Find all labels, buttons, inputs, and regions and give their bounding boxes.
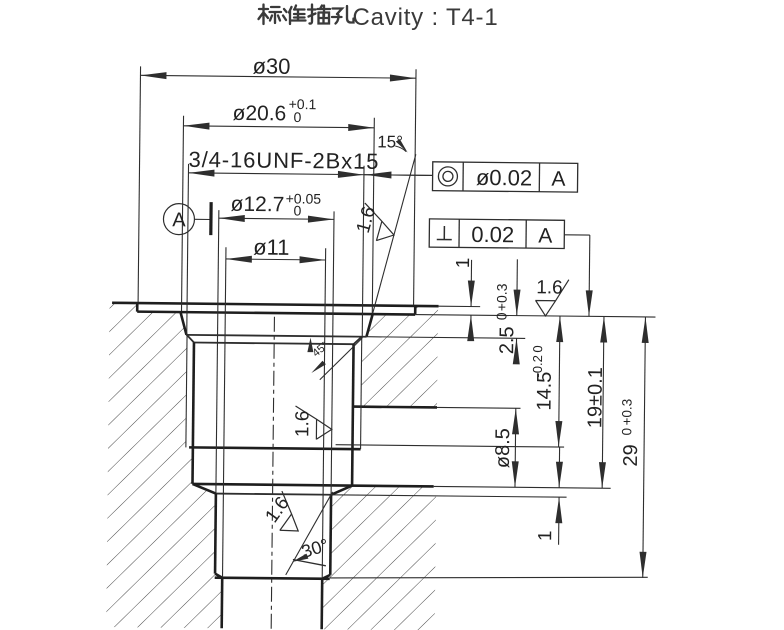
svg-text:ø0.02: ø0.02 (476, 165, 533, 191)
svg-text:ø8.5: ø8.5 (492, 428, 514, 468)
svg-text:1: 1 (535, 530, 556, 541)
svg-text:0: 0 (293, 109, 301, 125)
svg-text:A: A (551, 168, 565, 191)
svg-text:1.6: 1.6 (292, 411, 313, 438)
svg-text:ø20.6: ø20.6 (232, 102, 286, 126)
svg-text:3/4-16UNF-2Bx15: 3/4-16UNF-2Bx15 (188, 147, 379, 174)
svg-text:Cavity : T4-1: Cavity : T4-1 (353, 4, 499, 31)
svg-text:0: 0 (293, 202, 301, 218)
svg-text:ø11: ø11 (253, 235, 290, 260)
svg-text:29: 29 (620, 444, 642, 466)
svg-text:A: A (538, 225, 552, 248)
svg-text:0: 0 (493, 312, 509, 320)
svg-text:2.5: 2.5 (496, 326, 518, 354)
svg-text:1.6: 1.6 (536, 277, 563, 298)
svg-text:-0.2: -0.2 (530, 355, 545, 378)
svg-text:+0.3: +0.3 (619, 399, 634, 426)
svg-text:+0.05: +0.05 (286, 190, 322, 206)
svg-text:19±0.1: 19±0.1 (584, 367, 607, 428)
svg-text:0.02: 0.02 (471, 222, 514, 247)
svg-text:0: 0 (619, 428, 634, 436)
svg-text:A: A (172, 209, 186, 231)
svg-text:1: 1 (453, 258, 474, 269)
svg-text:ø30: ø30 (252, 54, 290, 79)
svg-text:0: 0 (530, 345, 545, 352)
svg-text:ø12.7: ø12.7 (231, 193, 285, 217)
svg-text:+0.3: +0.3 (494, 283, 510, 311)
